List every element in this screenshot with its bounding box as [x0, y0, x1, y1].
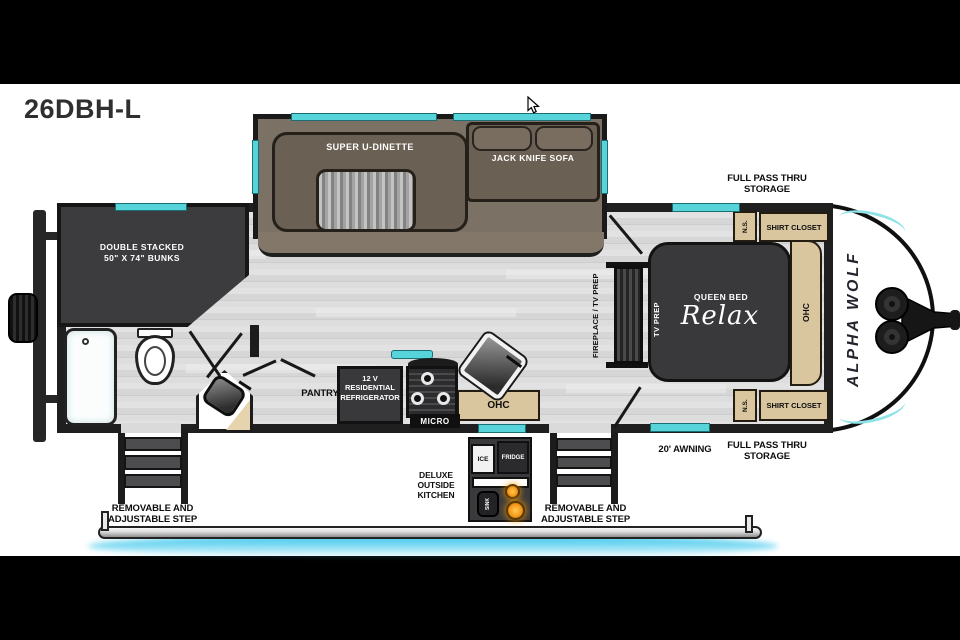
- burner-3: [437, 392, 450, 405]
- step-label-left: REMOVABLE AND ADJUSTABLE STEP: [100, 503, 205, 525]
- microwave-label: MICRO: [410, 414, 460, 428]
- fireplace-tv-cabinet: [614, 266, 643, 364]
- refrigerator-label: 12 V RESIDENTIAL REFRIGERATOR: [337, 374, 403, 402]
- nightstand-top-label: N.S.: [742, 216, 749, 238]
- dinette-label: SUPER U-DINETTE: [284, 142, 456, 153]
- bottom-letterbox-bar: [0, 556, 960, 640]
- bunk-window: [115, 203, 187, 211]
- hitch-and-propane-tanks: [872, 280, 960, 360]
- rear-doorway: [121, 423, 181, 433]
- sofa-cushion-left: [472, 126, 532, 151]
- outside-kitchen-label: DELUXE OUTSIDE KITCHEN: [405, 471, 467, 501]
- fireplace-label: FIREPLACE / TV PREP: [592, 266, 605, 366]
- bedroom-window-top: [672, 203, 740, 212]
- bedroom-window-bottom: [650, 423, 710, 432]
- slideout-window-side-left: [252, 140, 259, 194]
- slideout-window-right: [453, 113, 591, 121]
- pass-thru-storage-label-top: FULL PASS THRU STORAGE: [707, 173, 827, 195]
- sofa-label: JACK KNIFE SOFA: [470, 153, 596, 164]
- shirt-closet-bottom: SHIRT CLOSET: [759, 390, 829, 421]
- slideout-floor: [258, 232, 604, 257]
- rail-bracket-right: [745, 515, 753, 533]
- slideout-window-side-right: [601, 140, 608, 194]
- outside-kitchen-counter: [472, 477, 529, 488]
- sofa-cushion-right: [535, 126, 593, 151]
- bedroom-overhead-cabinet: OHC: [790, 240, 822, 386]
- nightstand-top: N.S.: [733, 211, 757, 242]
- outside-sink-label: SINK: [485, 495, 491, 513]
- rail-bracket-left: [101, 511, 109, 531]
- shirt-closet-top: SHIRT CLOSET: [759, 212, 829, 242]
- kitchen-window: [478, 424, 526, 433]
- bath-wall: [250, 325, 259, 357]
- bumper-tab-top: [44, 232, 58, 240]
- bedroom-ohc-label: OHC: [801, 293, 811, 333]
- outside-fridge: FRIDGE: [497, 441, 529, 474]
- shower: [64, 328, 117, 426]
- step-label-right: REMOVABLE AND ADJUSTABLE STEP: [533, 503, 638, 525]
- floorplan-page: 26DBH-L ALPHA WOLF: [0, 0, 960, 640]
- pass-thru-storage-label-bottom: FULL PASS THRU STORAGE: [707, 440, 827, 462]
- burner-2: [411, 392, 424, 405]
- toilet-bowl: [144, 346, 166, 376]
- bumper-tab-bottom: [44, 395, 58, 403]
- burner-1: [421, 372, 434, 385]
- main-entry-doorway: [549, 423, 611, 433]
- spare-tire: [8, 293, 38, 343]
- slideout-window-left: [291, 113, 437, 121]
- shower-drain: [82, 338, 89, 345]
- awning-label: 20' AWNING: [645, 444, 725, 455]
- outside-ice-maker: ICE: [471, 444, 495, 474]
- outside-burner-large: [506, 501, 525, 520]
- dinette-table: [316, 169, 416, 232]
- awning-rail: [98, 526, 762, 539]
- nightstand-bottom: N.S.: [733, 389, 757, 422]
- nightstand-bottom-label: N.S.: [742, 395, 749, 417]
- bunks-label: DOUBLE STACKED 50" X 74" BUNKS: [72, 242, 212, 263]
- mouse-cursor: [527, 96, 541, 114]
- relax-mattress-brand: Relax: [660, 300, 780, 333]
- brand-logo-alpha-wolf: ALPHA WOLF: [845, 228, 871, 410]
- outside-burner-small: [505, 484, 520, 499]
- floorplan-image[interactable]: ALPHA WOLF SUPER U-DINETT: [0, 84, 960, 556]
- top-letterbox-bar: [0, 0, 960, 84]
- outside-sink: SINK: [477, 491, 499, 517]
